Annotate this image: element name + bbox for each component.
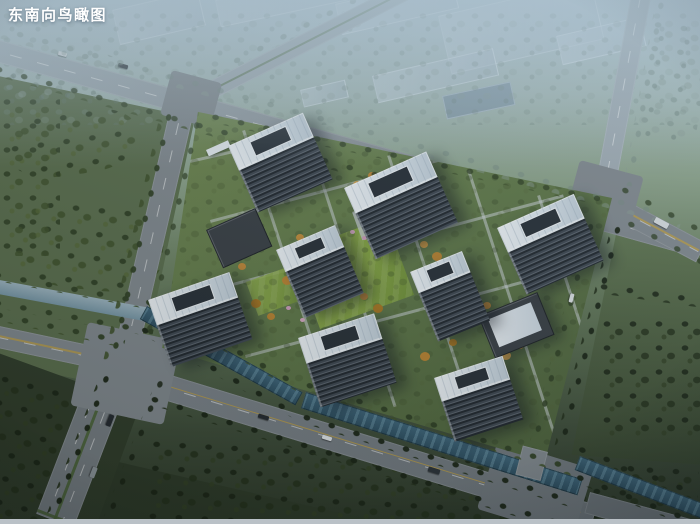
blossom-trees: [350, 230, 355, 234]
view-label: 东南向鸟瞰图: [8, 4, 107, 25]
tree-cluster: [0, 96, 60, 256]
bottom-edge-strip: [0, 519, 700, 524]
tree-cluster: [600, 318, 700, 438]
courtyard-roof: [488, 302, 542, 347]
aerial-rendering: 东南向鸟瞰图: [0, 0, 700, 524]
